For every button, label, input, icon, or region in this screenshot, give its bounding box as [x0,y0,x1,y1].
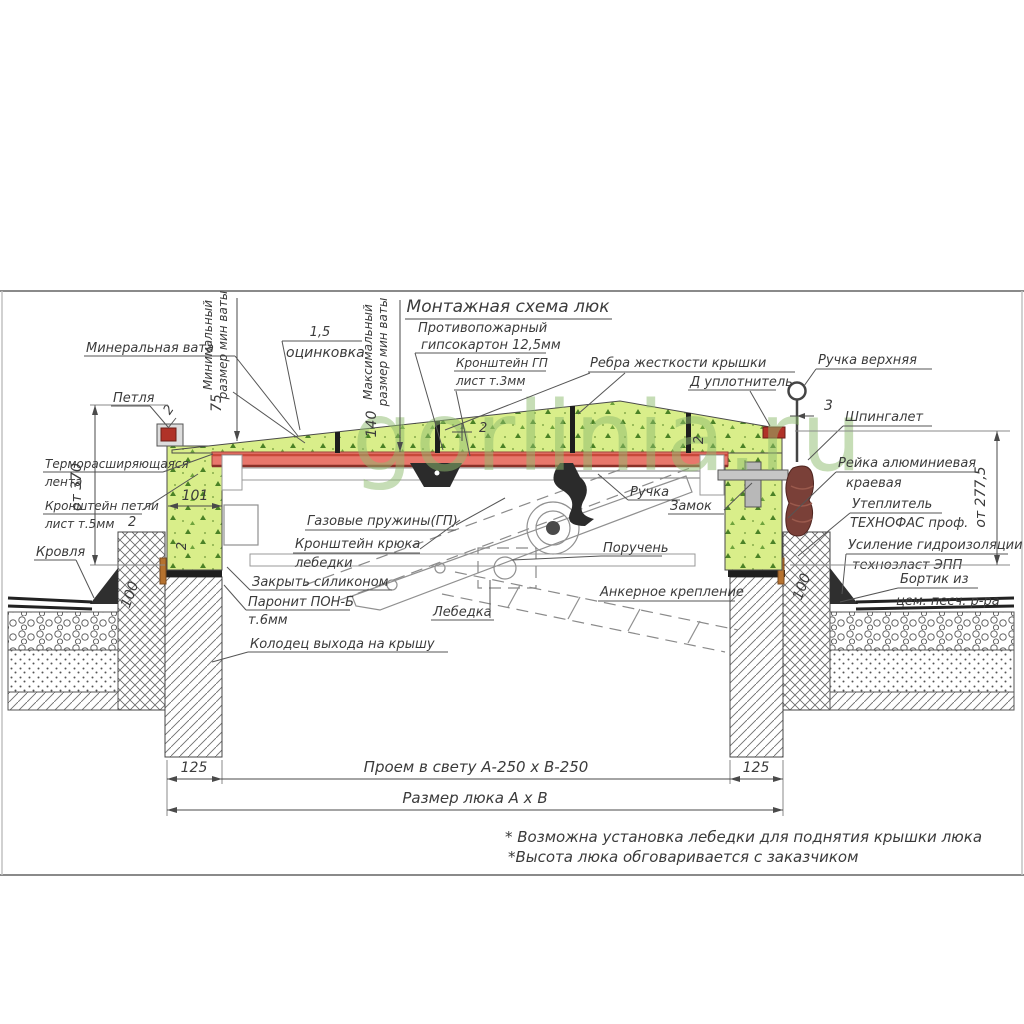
well-wall-right [730,577,783,757]
label-hinge-bracket-1: Кронштейн петли [45,499,159,513]
leader-mineral-wool [235,356,298,436]
dim-ot2775: от 277,5 [973,466,989,527]
dim-140: 140 [364,411,380,438]
masonry-wall-right [783,532,830,710]
masonry-wall-left [118,532,165,710]
arrow-op-2 [212,776,222,782]
note-height: *Высота люка обговаривается с заказчиком [508,848,858,866]
label-thermo-1: Терморасширяющаяся [45,457,189,471]
screed-layer-left [8,650,118,692]
dim-125-right: 125 [743,760,770,776]
paronite-gasket-left [165,570,222,577]
label-alu-rail-2: краевая [846,476,902,491]
ladder-rail-2 [442,594,725,652]
label-insulation-2: ТЕХНОФАС проф. [850,516,968,531]
arrow-ot370-top [92,405,98,415]
label-mineral-wool: Минеральная вата [86,341,214,356]
label-winch-bracket-2: лебедки [294,556,353,571]
label-fireproof-1: Противопожарный [418,321,547,336]
watermark-text: gorlinia.ru [352,381,864,493]
dim-75: 75 [209,394,225,412]
roofing-layer-left-2 [8,606,92,609]
leader-roof [76,560,94,598]
label-winch: Лебедка [432,605,492,620]
label-curb-1: Бортик из [900,572,969,587]
label-min-size-1: Минимальный [201,300,215,390]
dim-3: 3 [824,398,833,414]
label-hinge: Петля [113,391,155,406]
label-gp-bracket-1: Кронштейн ГП [456,356,548,370]
arrow-hs-2 [773,807,783,813]
frame-detail-left [222,455,242,490]
label-roof: Кровля [36,545,85,560]
cement-curb-left [90,568,118,604]
ladder-rung-2 [568,597,580,619]
arrow-op-1 [167,776,177,782]
leader-paronite [224,585,246,610]
dim-galv-thickness: 1,5 [310,325,331,340]
label-handle: Ручка [630,485,669,500]
screed-layer-right [830,650,1014,692]
label-latch: Шпингалет [845,410,923,425]
paronite-gasket-right [728,570,785,577]
label-silicone: Закрыть силиконом [252,575,389,590]
label-fireproof-2: гипсокартон 12,5мм [421,338,561,353]
slab-layer-left [8,692,118,710]
roofing-layer-left [8,598,92,602]
anchor-pin-left [160,558,166,584]
label-top-handle: Ручка верхняя [818,353,917,368]
dim-2-post: 2 [175,542,190,550]
drawing-title: Монтажная схема люк [407,297,611,317]
leader-gas-springs [456,498,505,525]
label-well: Колодец выхода на крышу [250,637,435,652]
arrow-op-3 [730,776,740,782]
label-anchor: Анкерное крепление [599,585,744,600]
gravel-layer-left [8,612,118,650]
well-wall-left [165,577,222,757]
label-gp-bracket-2: лист т.3мм [455,374,525,388]
label-gas-springs: Газовые пружины(ГП) [307,514,458,529]
arrow-hs-1 [167,807,177,813]
stiffening-rib-1 [335,432,340,453]
dim-2-right: 2 [692,436,707,444]
label-handrail: Поручень [603,541,669,556]
label-alu-rail-1: Рейка алюминиевая [838,456,976,471]
hinge-pin [161,428,176,441]
note-winch-option: * Возможна установка лебедки для подняти… [505,828,982,846]
label-paronite-1: Паронит ПОН-Б [248,595,354,610]
label-galv: оцинковка [286,345,365,361]
label-max-size-2: размер мин ваты [376,298,390,408]
hatch-assembly-drawing: gorlinia.ru Монтажная схема люк Минераль… [0,0,1024,1024]
arrow-ot2775-top [994,431,1000,441]
dim-125-left: 125 [181,760,208,776]
label-waterproof-1: Усиление гидроизоляции [848,538,1023,553]
ladder-rung-4 [688,621,700,643]
dim-2-lid: 2 [479,421,487,436]
roof-structure-left [8,532,165,710]
slab-layer-right [830,692,1014,710]
label-insulation-1: Утеплитель [852,497,932,512]
dim-101: 101 [182,488,209,504]
dim-hatch-size: Размер люка А х В [402,789,547,807]
dim-ot370: от 370 [69,463,85,511]
label-ribs: Ребра жесткости крышки [590,356,766,371]
label-d-seal: Д уплотнитель [689,375,793,390]
dim-2-jamb: 2 [128,515,136,530]
pulley-hub [546,521,560,535]
jamb-bracket [224,505,258,545]
arrow-ot370-bottom [92,555,98,565]
label-winch-bracket-1: Кронштейн крюка [295,537,420,552]
drawing-sheet: gorlinia.ru Монтажная схема люк Минераль… [0,0,1024,1024]
dim-opening: Проем в свету А-250 х В-250 [364,758,589,776]
label-paronite-2: т.6мм [248,613,288,628]
label-curb-2: цем. песч. р-ра [896,594,1000,609]
ladder-rung-3 [628,609,640,631]
label-lock: Замок [670,499,712,514]
arrow-op-4 [773,776,783,782]
label-min-size-2: размер мин ваты [216,291,230,401]
gravel-layer-right [830,612,1014,650]
label-hinge-bracket-2: лист т.5мм [44,517,114,531]
arrow-ot2775-bottom [994,555,1000,565]
leader-silicone [227,567,250,590]
arrow-75 [234,431,240,441]
